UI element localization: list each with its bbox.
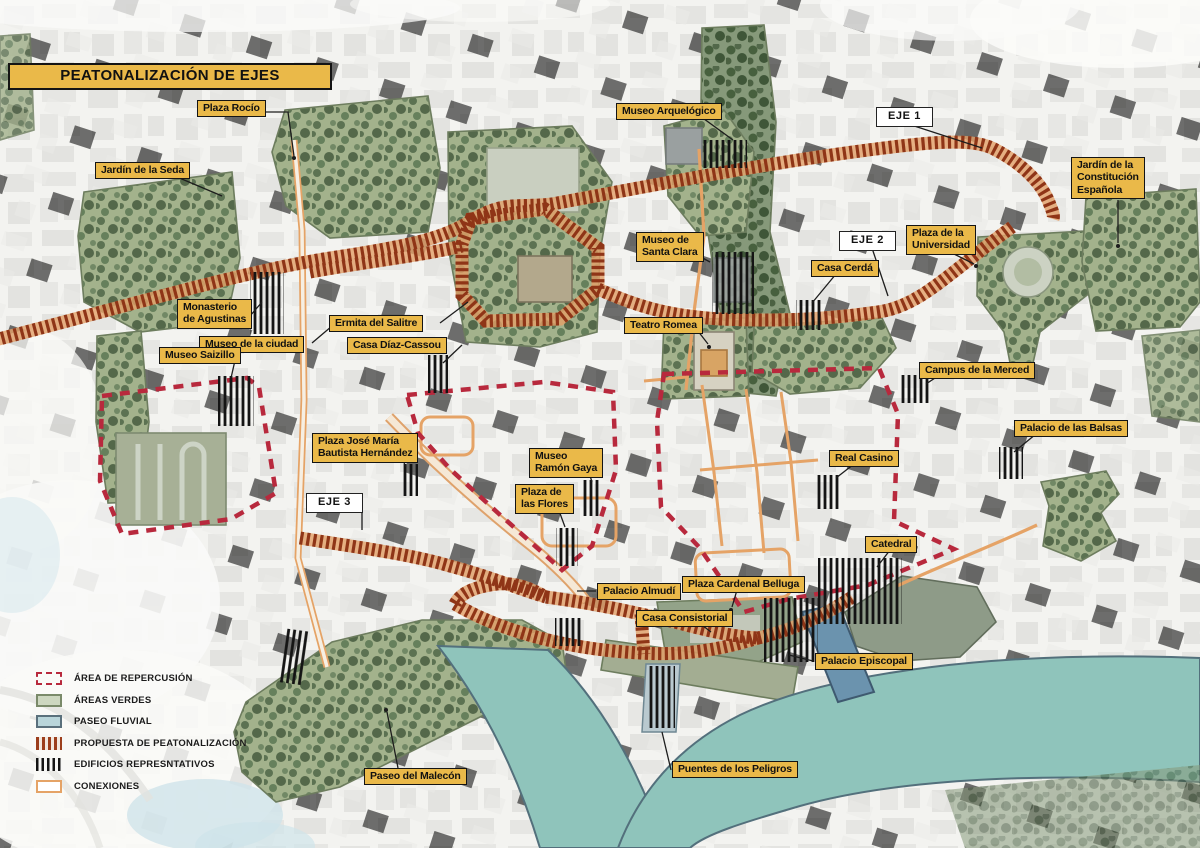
- legend-label: PROPUESTA DE PEATONALIZACIÓN: [74, 738, 247, 749]
- constitucion-park: [1082, 189, 1200, 331]
- legend-row-propuesta-peatonalizacion: PROPUESTA DE PEATONALIZACIÓN: [36, 737, 247, 750]
- map-poster: PEATONALIZACIÓN DE EJES Plaza RocíoJardí…: [0, 0, 1200, 848]
- legend-row-conexiones: CONEXIONES: [36, 780, 247, 793]
- legend-items: ÁREA DE REPERCUSIÓN ÁREAS VERDES PASEO F…: [36, 672, 247, 793]
- legend-swatch: [36, 737, 62, 750]
- legend-swatch: [36, 694, 62, 707]
- legend-swatch: [36, 758, 62, 771]
- merced-green: [1142, 330, 1200, 422]
- legend-label: ÁREAS VERDES: [74, 695, 151, 706]
- legend-label: CONEXIONES: [74, 781, 139, 792]
- saizillo-block: [116, 433, 226, 525]
- legend: ÁREA DE REPERCUSIÓN ÁREAS VERDES PASEO F…: [36, 672, 247, 801]
- legend-row-edificios-representativos: EDIFICIOS REPRESNTATIVOS: [36, 758, 247, 771]
- legend-swatch: [36, 672, 62, 685]
- legend-label: ÁREA DE REPERCUSIÓN: [74, 673, 193, 684]
- legend-row-area-repercusion: ÁREA DE REPERCUSIÓN: [36, 672, 247, 685]
- legend-swatch: [36, 715, 62, 728]
- legend-swatch: [36, 780, 62, 793]
- legend-label: PASEO FLUVIAL: [74, 716, 152, 727]
- legend-row-areas-verdes: ÁREAS VERDES: [36, 694, 247, 707]
- legend-label: EDIFICIOS REPRESNTATIVOS: [74, 759, 215, 770]
- legend-row-paseo-fluvial: PASEO FLUVIAL: [36, 715, 247, 728]
- page-title: PEATONALIZACIÓN DE EJES: [8, 63, 332, 90]
